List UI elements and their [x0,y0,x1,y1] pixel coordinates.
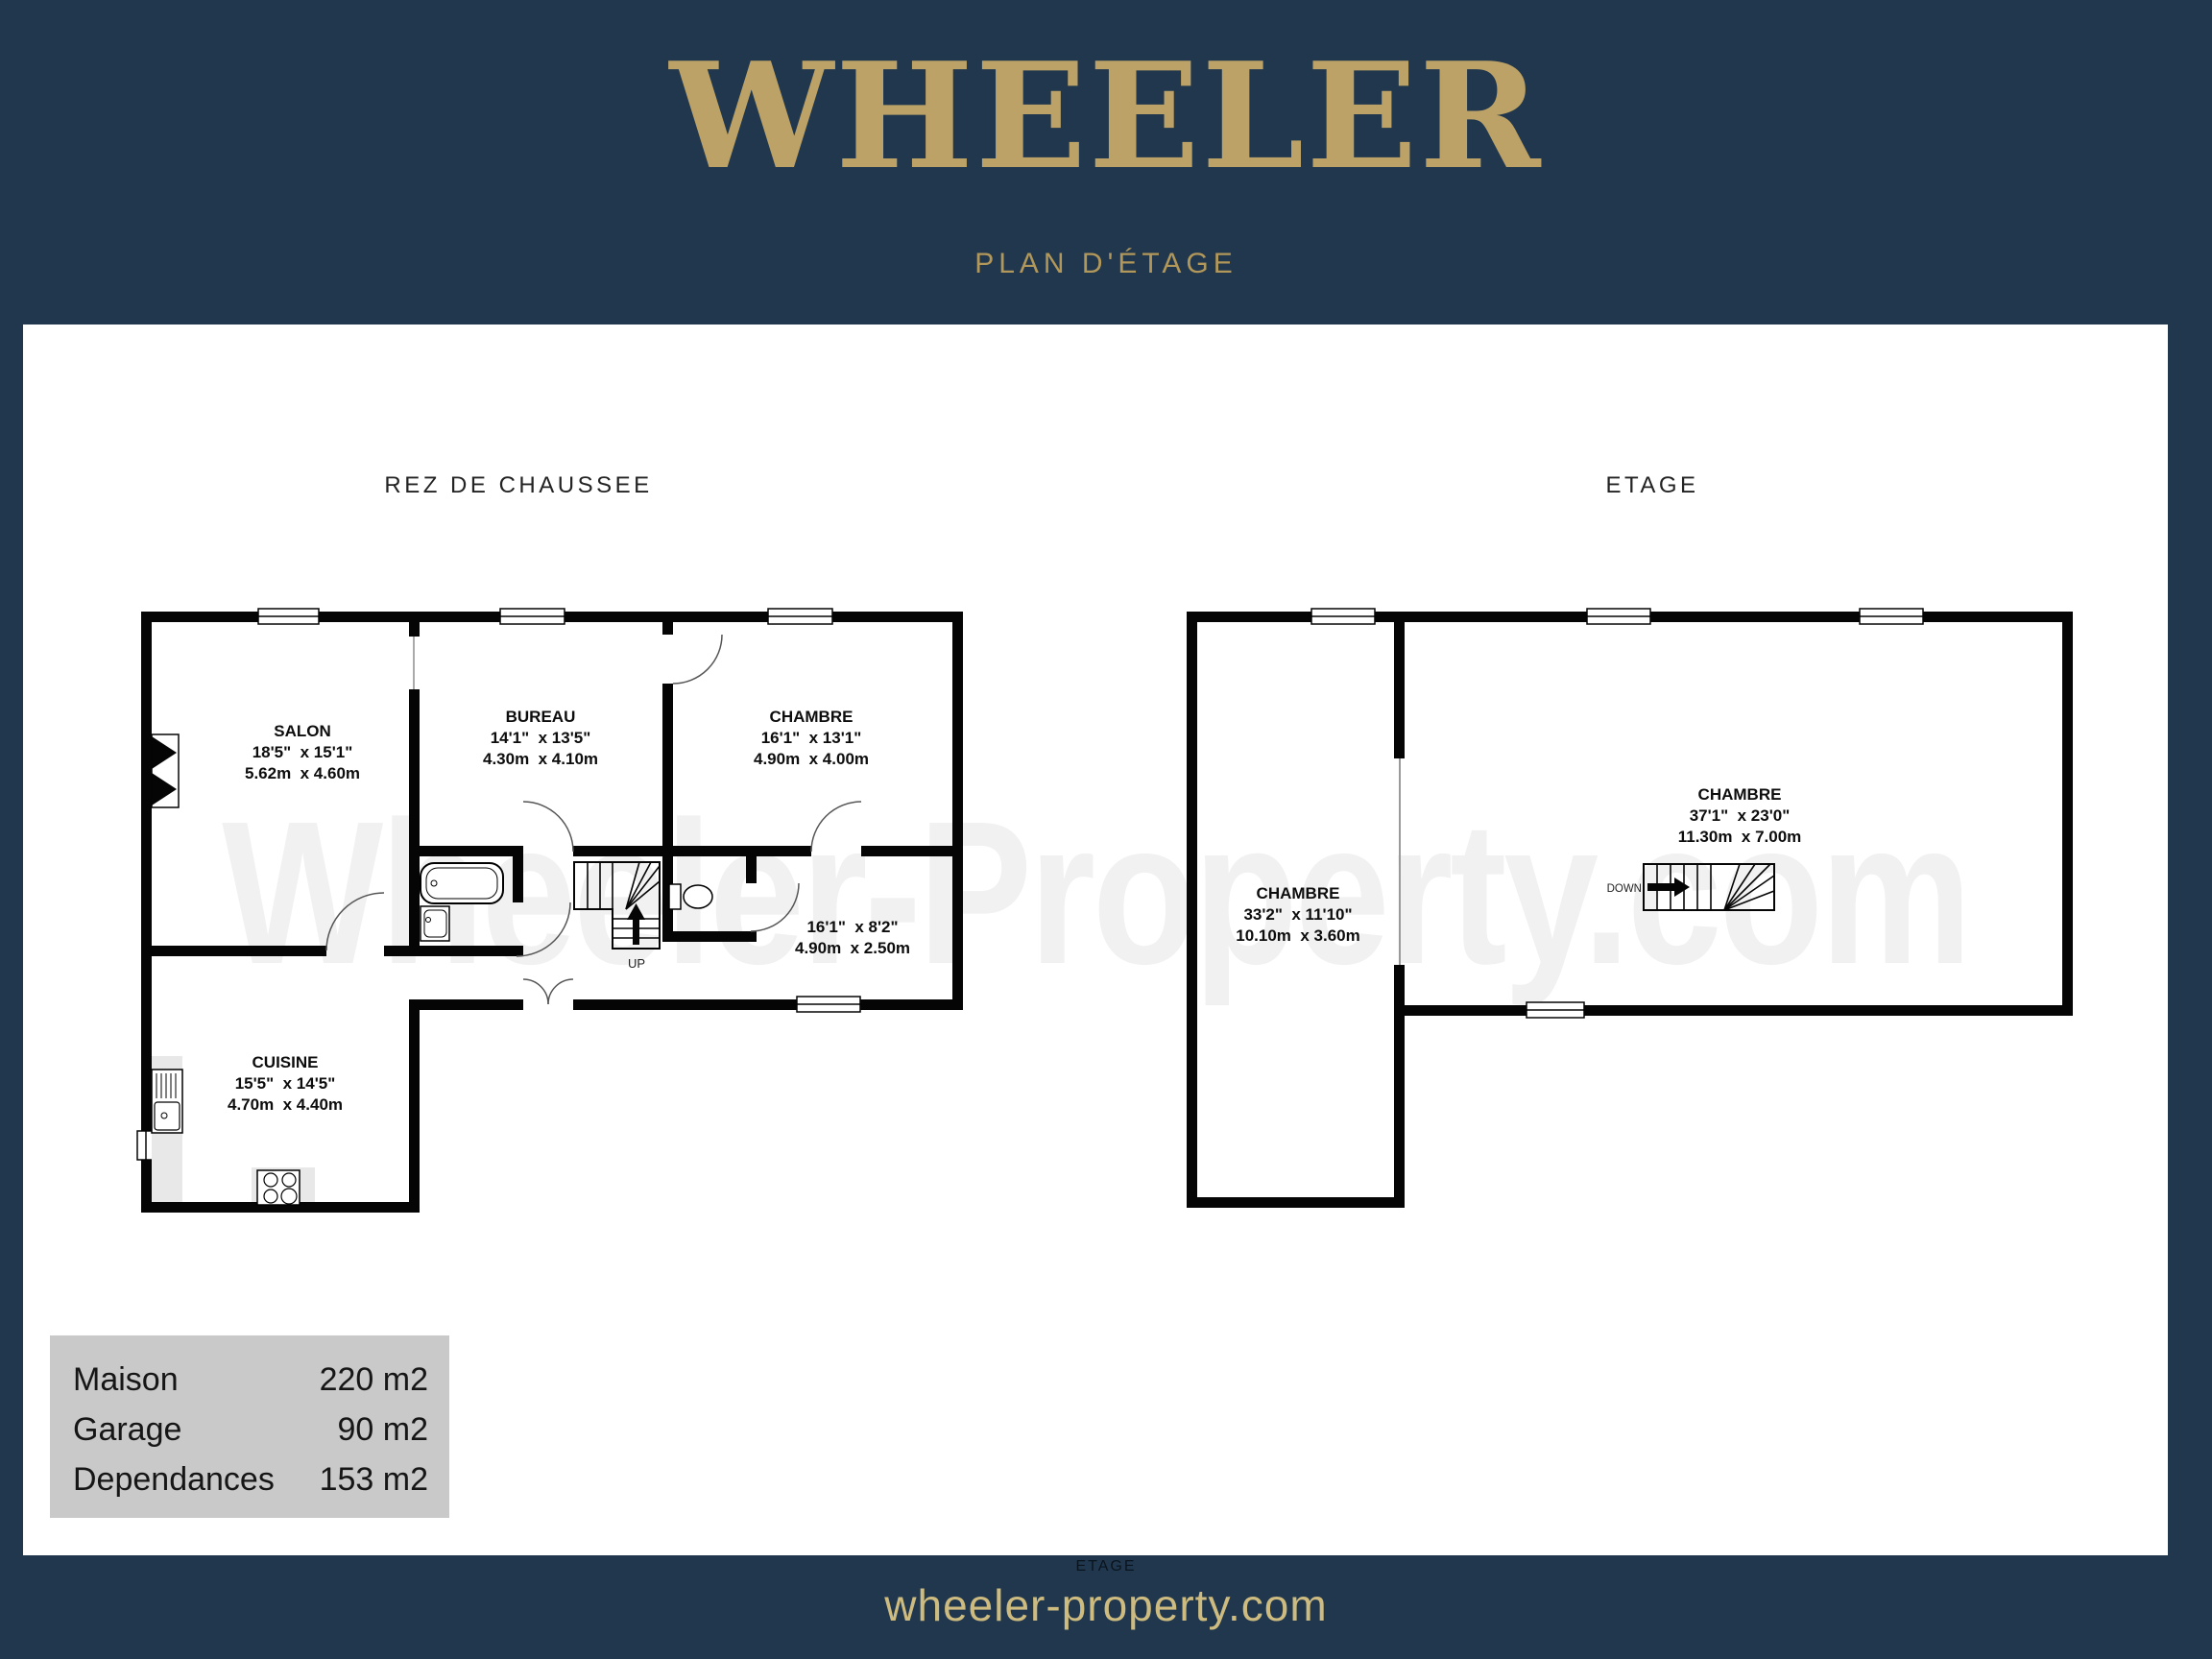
room-label-small-room: 16'1" x 8'2" 4.90m x 2.50m [795,917,910,959]
stairs-down-label: DOWN [1607,883,1642,895]
footer-website: wheeler-property.com [0,1579,2212,1631]
room-label-chambre-ground: CHAMBRE 16'1" x 13'1" 4.90m x 4.00m [754,707,869,770]
area-summary-box: Maison 220 m2 Garage 90 m2 Dependances 1… [50,1335,449,1518]
footer-caption: ETAGE [0,1558,2212,1575]
entry-door-icon [152,734,179,807]
ground-walls [141,612,963,1213]
room-label-chambre-upper-small: CHAMBRE 33'2" x 11'10" 10.10m x 3.60m [1236,883,1359,947]
room-label-bureau: BUREAU 14'1" x 13'5" 4.30m x 4.10m [483,707,598,770]
brand-tagline: PLAN D'ÉTAGE [0,248,2212,280]
summary-row-dependances: Dependances 153 m2 [73,1461,428,1499]
room-label-chambre-upper-large: CHAMBRE 37'1" x 23'0" 11.30m x 7.00m [1678,784,1802,848]
brand-title: WHEELER [0,25,2212,207]
toilet-icon [669,884,712,909]
staircase-down [1644,864,1774,910]
summary-row-garage: Garage 90 m2 [73,1411,428,1449]
stove-icon [257,1170,300,1205]
summary-row-maison: Maison 220 m2 [73,1361,428,1399]
room-label-salon: SALON 18'5" x 15'1" 5.62m x 4.60m [245,721,360,784]
staircase-up [574,862,660,949]
bathroom-sink-icon [421,906,449,941]
bathtub-icon [421,863,503,903]
stairs-up-label: UP [628,956,645,971]
kitchen-sink-icon [152,1070,182,1133]
floorplan-sheet: Wheeler-Property.com REZ DE CHAUSSEE ETA… [23,325,2168,1555]
flyer-page: WHEELER PLAN D'ÉTAGE Wheeler-Property.co… [0,0,2212,1659]
ground-floor-plan: UP [137,609,963,1213]
room-label-cuisine: CUISINE 15'5" x 14'5" 4.70m x 4.40m [228,1052,343,1116]
